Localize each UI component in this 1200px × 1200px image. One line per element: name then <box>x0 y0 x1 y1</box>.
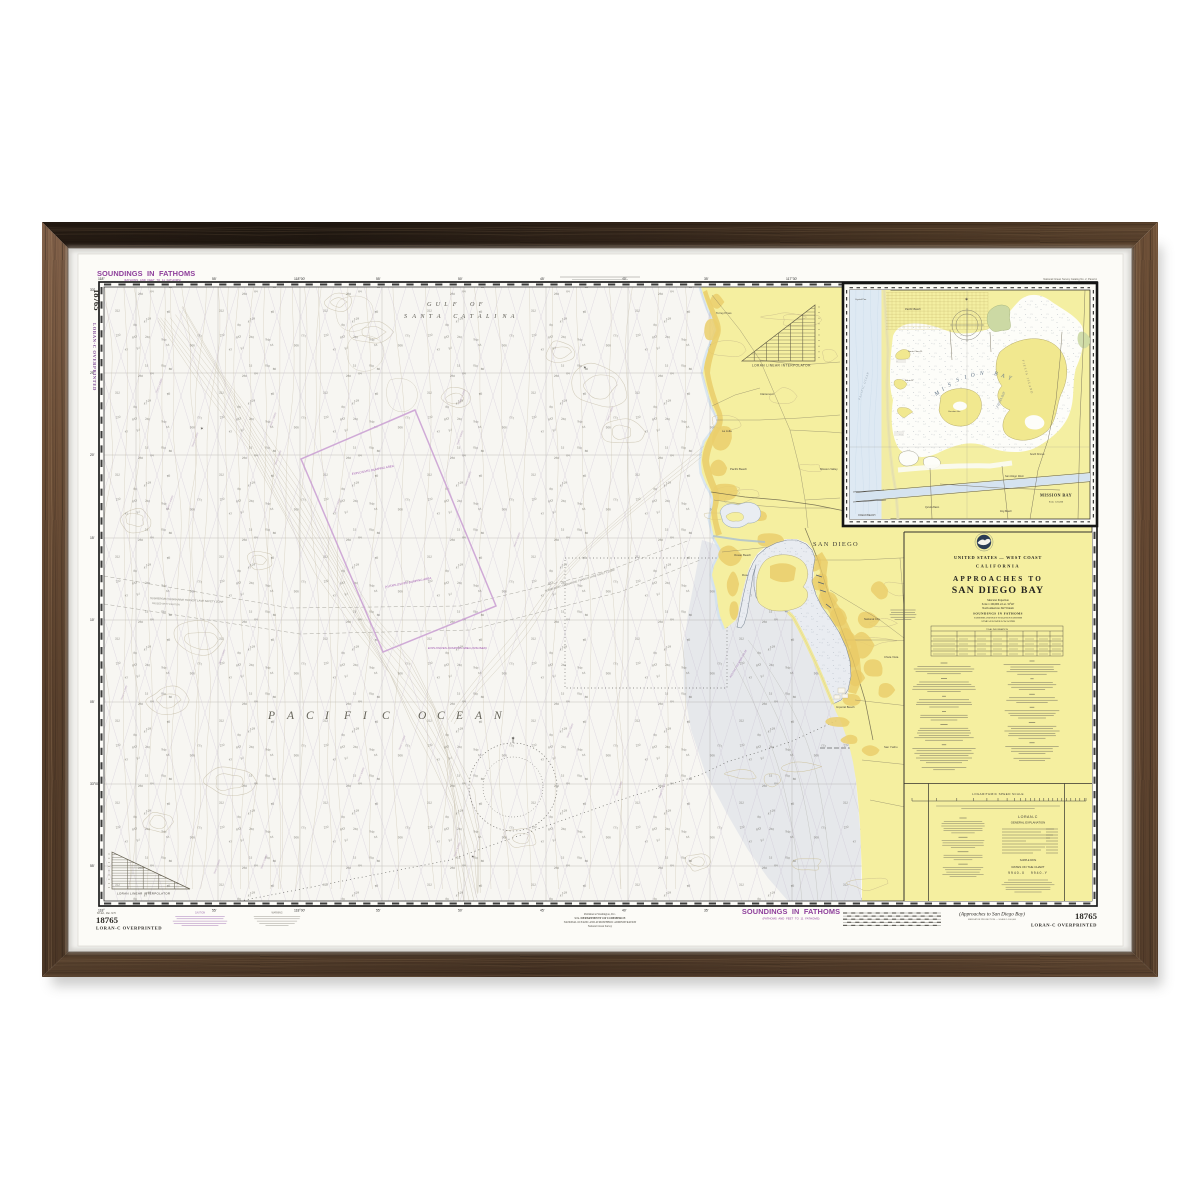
svg-text:55': 55' <box>90 864 95 868</box>
svg-text:L: L <box>443 301 448 308</box>
svg-text:F: F <box>478 301 483 308</box>
svg-text:9940-X 9940-Y: 9940-X 9940-Y <box>1008 871 1048 875</box>
svg-text:Scale 1:25,000: Scale 1:25,000 <box>1049 501 1064 504</box>
svg-text:San Ysidro: San Ysidro <box>884 745 898 749</box>
svg-text:SOUNDINGS IN FATHOMS: SOUNDINGS IN FATHOMS <box>973 612 1023 616</box>
svg-text:LORAN-C OVERPRINTED: LORAN-C OVERPRINTED <box>96 926 162 931</box>
svg-text:A: A <box>460 313 465 320</box>
svg-text:118°00': 118°00' <box>294 909 306 913</box>
svg-text:EXPLOSIVES DUMPING AREA (DISUS: EXPLOSIVES DUMPING AREA (DISUSED) <box>428 646 487 650</box>
svg-text:50': 50' <box>458 277 463 281</box>
svg-text:E: E <box>455 710 463 722</box>
svg-text:National Ocean Survey Catalog: National Ocean Survey Catalog No. 2, Pan… <box>1043 277 1097 281</box>
svg-text:A: A <box>510 313 515 320</box>
svg-text:50': 50' <box>458 909 463 913</box>
svg-text:S: S <box>404 313 407 320</box>
svg-text:45': 45' <box>540 277 545 281</box>
svg-text:RATES ON THE CHART: RATES ON THE CHART <box>1011 865 1044 869</box>
svg-text:LORAN-C: LORAN-C <box>1018 815 1038 819</box>
svg-text:SOUNDINGS IN FATHOMS: SOUNDINGS IN FATHOMS <box>97 269 195 278</box>
svg-text:National City: National City <box>864 617 880 621</box>
svg-text:SOUNDINGS IN FATHOMS: SOUNDINGS IN FATHOMS <box>742 907 840 916</box>
svg-text:(FATHOMS AND FEET TO 11 FATHOM: (FATHOMS AND FEET TO 11 FATHOMS) <box>124 278 181 282</box>
svg-text:Pacific Beach: Pacific Beach <box>905 307 921 311</box>
svg-text:South Shores: South Shores <box>1030 453 1045 456</box>
svg-text:North American 1927 Datum: North American 1927 Datum <box>982 607 1014 610</box>
svg-text:O: O <box>418 710 427 722</box>
svg-text:O: O <box>470 301 475 308</box>
svg-text:✶: ✶ <box>583 365 587 370</box>
svg-text:U: U <box>436 301 441 308</box>
svg-text:Ocean Beach: Ocean Beach <box>734 553 751 557</box>
svg-text:45': 45' <box>540 909 545 913</box>
svg-text:F: F <box>452 301 457 308</box>
svg-text:San Diego River: San Diego River <box>1005 474 1024 478</box>
svg-text:LORAN LINEAR INTERPOLATOR: LORAN LINEAR INTERPOLATOR <box>752 364 811 368</box>
svg-text:55': 55' <box>212 277 217 281</box>
svg-text:C: C <box>306 710 314 722</box>
svg-text:T: T <box>429 313 433 320</box>
svg-text:A: A <box>286 710 295 722</box>
svg-text:F: F <box>343 710 352 722</box>
svg-text:P: P <box>267 710 275 722</box>
svg-text:MISSION BAY: MISSION BAY <box>1040 493 1072 498</box>
svg-text:40': 40' <box>622 277 627 281</box>
svg-text:A: A <box>474 710 483 722</box>
svg-text:SAN DIEGO: SAN DIEGO <box>813 541 859 548</box>
svg-text:Clairemont: Clairemont <box>760 392 774 396</box>
svg-text:15': 15' <box>90 536 95 540</box>
svg-text:Crystal Pier: Crystal Pier <box>855 298 867 301</box>
svg-text:National Ocean Survey: National Ocean Survey <box>588 925 613 928</box>
svg-text:GENERAL EXPLANATION: GENERAL EXPLANATION <box>1011 821 1046 825</box>
svg-text:20': 20' <box>90 453 95 457</box>
svg-text:N: N <box>493 710 503 722</box>
svg-text:LORAN-C OVERPRINTED: LORAN-C OVERPRINTED <box>92 323 97 391</box>
svg-text:L: L <box>485 313 490 320</box>
svg-text:33°00': 33°00' <box>90 782 100 786</box>
svg-text:CALIFORNIA: CALIFORNIA <box>976 564 1020 569</box>
svg-text:NATIONAL OCEANIC AND ATMOSPHER: NATIONAL OCEANIC AND ATMOSPHERIC ADMINIS… <box>564 921 637 924</box>
svg-text:✶: ✶ <box>471 854 474 859</box>
svg-text:LORAN LINEAR INTERPOLATOR: LORAN LINEAR INTERPOLATOR <box>117 892 171 896</box>
svg-text:UNITED STATES — WEST COAST: UNITED STATES — WEST COAST <box>954 555 1042 560</box>
svg-text:Mission Valley: Mission Valley <box>820 467 838 471</box>
svg-text:117°30': 117°30' <box>786 277 798 281</box>
svg-text:LOGARITHMIC SPEED SCALE: LOGARITHMIC SPEED SCALE <box>972 792 1024 796</box>
svg-text:LORAN-C OVERPRINTED: LORAN-C OVERPRINTED <box>1031 923 1097 928</box>
svg-text:CAUTION: CAUTION <box>195 912 206 915</box>
svg-text:APPROACHES TO: APPROACHES TO <box>953 575 1043 583</box>
svg-text:18765: 18765 <box>1075 911 1098 921</box>
svg-text:C: C <box>437 710 445 722</box>
svg-text:✶: ✶ <box>511 736 515 742</box>
svg-text:118°00': 118°00' <box>294 277 306 281</box>
svg-text:AT MEAN LOWER LOW WATER: AT MEAN LOWER LOW WATER <box>981 620 1016 623</box>
svg-text:SAMPLE RATE: SAMPLE RATE <box>1020 859 1037 862</box>
svg-text:55': 55' <box>376 909 381 913</box>
svg-text:✶: ✶ <box>200 426 204 431</box>
svg-text:Mercator Projection: Mercator Projection <box>987 599 1009 602</box>
svg-text:Vacation Isle: Vacation Isle <box>948 410 961 413</box>
svg-text:Chula Vista: Chula Vista <box>884 655 899 659</box>
svg-text:A: A <box>477 313 482 320</box>
svg-text:MERCATOR PROJECTION — SCALE 1:: MERCATOR PROJECTION — SCALE 1:100,000 <box>968 918 1017 921</box>
svg-text:SAN DIEGO BAY: SAN DIEGO BAY <box>952 585 1045 596</box>
svg-text:A: A <box>411 313 416 320</box>
svg-text:18765: 18765 <box>92 289 102 310</box>
svg-text:Torrey Pines: Torrey Pines <box>716 311 732 315</box>
svg-text:N: N <box>979 371 984 377</box>
svg-text:18765: 18765 <box>96 915 119 925</box>
svg-text:T: T <box>470 313 474 320</box>
svg-text:Pacific Beach: Pacific Beach <box>730 467 747 471</box>
svg-text:Bahia Pt: Bahia Pt <box>905 379 914 382</box>
svg-text:40': 40' <box>622 909 627 913</box>
svg-text:La Jolla: La Jolla <box>722 429 732 433</box>
svg-text:35': 35' <box>704 909 709 913</box>
svg-text:Imperial Beach: Imperial Beach <box>836 705 855 709</box>
svg-text:N: N <box>419 313 425 320</box>
svg-text:TIDAL INFORMATION: TIDAL INFORMATION <box>986 628 1008 631</box>
svg-text:55': 55' <box>376 277 381 281</box>
svg-text:(Approaches to San Diego Bay): (Approaches to San Diego Bay) <box>959 911 1025 918</box>
svg-text:35': 35' <box>704 277 709 281</box>
svg-text:WARNING: WARNING <box>271 912 282 915</box>
svg-text:55': 55' <box>212 909 217 913</box>
svg-text:(FATHOMS AND FEET TO 11 FATHOM: (FATHOMS AND FEET TO 11 FATHOMS) <box>763 917 820 921</box>
svg-text:N: N <box>501 313 507 320</box>
svg-text:Quivira Basin: Quivira Basin <box>925 506 940 509</box>
svg-text:Dog Beach: Dog Beach <box>1000 510 1012 513</box>
svg-text:G: G <box>427 301 432 308</box>
svg-text:✶: ✶ <box>965 297 969 303</box>
svg-text:Santa Clara Pt: Santa Clara Pt <box>908 350 923 353</box>
svg-text:Scale 1:100,000 at Lat. 32°40': Scale 1:100,000 at Lat. 32°40' <box>982 603 1015 606</box>
svg-text:05': 05' <box>90 700 95 704</box>
svg-text:A: A <box>436 313 441 320</box>
svg-text:C: C <box>382 710 390 722</box>
svg-text:OCEAN BEACH: OCEAN BEACH <box>858 514 876 517</box>
svg-text:U.S. DEPARTMENT OF COMMERCE: U.S. DEPARTMENT OF COMMERCE <box>574 916 625 920</box>
svg-text:10': 10' <box>90 618 95 622</box>
